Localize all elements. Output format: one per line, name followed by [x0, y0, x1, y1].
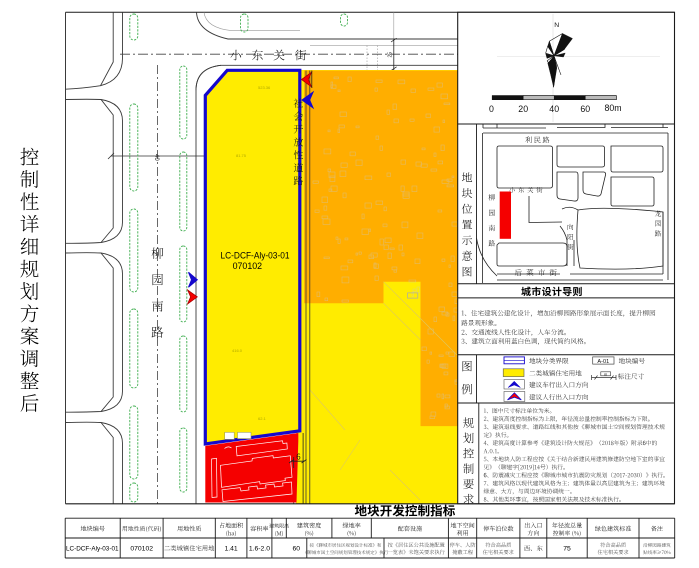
svg-text:070102: 070102	[130, 546, 153, 553]
svg-text:60: 60	[293, 546, 301, 553]
svg-text:62.1: 62.1	[258, 416, 267, 421]
svg-text:523.36: 523.36	[258, 85, 271, 90]
svg-text:1.41: 1.41	[224, 546, 237, 553]
svg-text:070102: 070102	[233, 261, 263, 271]
svg-text:40: 40	[549, 104, 559, 114]
svg-text:20: 20	[518, 104, 528, 114]
svg-text:416.0: 416.0	[232, 348, 243, 353]
svg-text:LC-DCF-Aly-03-01: LC-DCF-Aly-03-01	[221, 250, 290, 260]
svg-text:0: 0	[489, 104, 494, 114]
svg-text:25: 25	[388, 52, 394, 58]
svg-text:LC-DCF-Aly-03-01: LC-DCF-Aly-03-01	[66, 546, 119, 553]
svg-text:80m: 80m	[604, 103, 621, 113]
svg-text:m: m	[604, 372, 607, 376]
svg-text:81.75: 81.75	[236, 153, 247, 158]
svg-text:A-01: A-01	[597, 359, 609, 365]
svg-text:40: 40	[153, 154, 159, 161]
svg-text:75: 75	[563, 546, 571, 553]
svg-text:60: 60	[580, 104, 590, 114]
svg-text:1.6-2.0: 1.6-2.0	[249, 546, 270, 553]
svg-text:N: N	[554, 22, 559, 29]
